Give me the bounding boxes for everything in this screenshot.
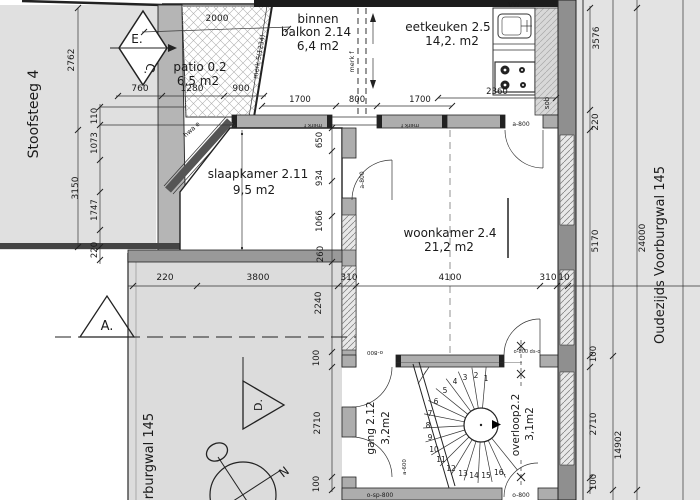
section-label-e: E. [131,32,142,46]
dim-260: 260 [316,246,326,262]
annotation-o800-ds: o-800 ds-o [514,349,541,355]
step-number: 2 [474,371,479,380]
street-label-voorburgwal: orburgwal 145 [142,413,157,500]
dim-1066: 1066 [315,210,325,232]
room-label-slaapkamer: slaapkamer 2.11 [208,167,309,181]
step-number: 13 [458,469,468,478]
room-label-balkon-2: balkon 2.14 [281,25,351,39]
dim-14902: 14902 [614,431,624,460]
annotation-osp800: o-sp-800 [367,492,394,499]
dim-4100: 4100 [439,273,462,283]
dim-310a: 310 [340,273,357,283]
west-wall [342,128,392,367]
floorplan-drawing: 1 2 3 4 5 6 7 8 9 10 11 12 13 14 15 16. … [0,0,700,500]
street-label-stoofsteeg: Stoofsteeg 4 [26,70,42,159]
dim-2710b: 2710 [589,412,599,435]
north-wall-band [232,115,558,128]
room-label-slaapkamer-area: 9,5 m2 [233,183,275,197]
step-number: 4 [453,377,458,386]
annotation-a800-slaapkamer: a-800 [359,171,366,188]
dim-650: 650 [315,132,325,148]
south-wall-band [342,355,558,367]
dim-760: 760 [131,84,148,94]
step-number: 15 [481,471,491,480]
dim-24000: 24000 [638,223,648,252]
room-label-gang-area: 3,2m2 [380,411,392,445]
dim-3576: 3576 [592,26,602,49]
step-number: 6 [434,397,439,406]
arrow-up-icon [370,13,376,22]
street-label-oudezijds: Oudezijds Voorburgwal 145 [653,166,668,344]
dim-220l: 220 [90,242,100,258]
annotation-merk-f: merk f [348,51,356,73]
dim-220r: 220 [591,113,601,130]
room-label-balkon-area: 6,4 m2 [297,39,339,53]
annotation-o800-gang: o-800 [367,349,383,355]
dim-3800: 3800 [247,273,270,283]
room-label-woonkamer-area: 21,2 m2 [424,240,474,254]
step-number: 1 [484,374,489,383]
step-number: 16. [494,468,506,477]
door-gang-top [352,367,392,407]
room-label-balkon-1: binnen [297,12,338,26]
dim-900: 900 [232,84,249,94]
dim-2710a: 2710 [313,411,323,434]
dim-1700a: 1700 [289,95,311,105]
annotation-merk-f-right: merk f [400,122,419,128]
room-label-eetkeuken: eetkeuken 2.5 [405,20,490,34]
step-number: 9 [428,433,433,442]
door-eetkeuken [505,130,543,168]
step-number: 12 [446,464,456,473]
dim-220m: 220 [156,273,173,283]
dim-934: 934 [315,170,325,186]
room-label-overloop: overloop2.2 [510,394,522,457]
dim-100c: 100 [589,346,599,362]
room-label-eetkeuken-area: 14,2. m2 [425,34,479,48]
annotation-merk-f-left: merk f [303,122,322,128]
section-label-d: D. [252,399,265,411]
dim-2000: 2000 [206,14,229,24]
annotation-a800-eetkeuken: a-800 [512,121,529,128]
dim-3150: 3150 [71,176,81,199]
step-number: 14 [469,471,479,480]
section-label-a: A. [101,319,114,334]
step-number: 8 [426,421,431,430]
dim-2360: 2360 [486,87,508,97]
east-wall [558,0,576,500]
dim-310b: 310 [539,273,556,283]
stair-direction-zigzag [418,367,429,384]
stair-step-lines [396,362,522,483]
annotation-o800-bottom: o-800 [512,492,530,499]
dim-2240: 2240 [314,291,324,314]
arrow-down-icon [370,80,376,89]
step-number: 5 [443,386,448,395]
step-number: 7 [428,409,433,418]
room-label-gang: gang 2.12 [365,401,377,454]
annotation-vw: VW [508,1,520,9]
room-label-overloop-area: 3,1m2 [524,407,536,441]
dim-100b: 100 [312,476,322,492]
dim-100d: 100 [589,474,599,490]
dim-100a: 100 [312,350,322,366]
dim-1280: 1280 [181,84,204,94]
dim-10: 10 [558,273,570,283]
annotation-a600-gang: a-600 [402,459,408,475]
annotation-hwa: hwa e [182,120,202,139]
dim-5170: 5170 [591,229,601,252]
annotation-sob: sob [543,96,551,109]
dim-1700b: 1700 [409,95,431,105]
dim-800: 800 [349,95,365,105]
dim-1073: 1073 [90,132,100,154]
dim-1747: 1747 [90,199,100,221]
room-label-patio: patio 0.2 [173,60,226,74]
room-label-woonkamer: woonkamer 2.4 [403,226,496,240]
step-number: 10 [429,445,439,454]
floorplan-canvas: 1 2 3 4 5 6 7 8 9 10 11 12 13 14 15 16. … [0,0,700,500]
dim-2762: 2762 [67,49,77,72]
step-number: 11 [436,455,446,464]
door-slaapkamer [352,160,392,200]
dim-110: 110 [90,108,100,124]
step-number: 3 [463,373,468,382]
